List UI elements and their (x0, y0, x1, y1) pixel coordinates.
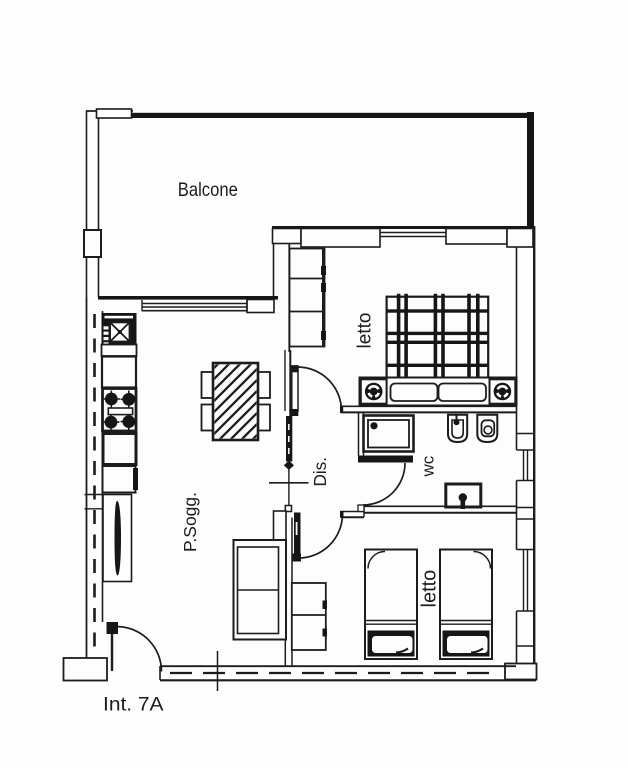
svg-text:P.Sogg.: P.Sogg. (180, 492, 200, 552)
svg-text:Dis.: Dis. (310, 457, 330, 487)
svg-text:letto: letto (419, 570, 441, 608)
svg-text:Int. 7A: Int. 7A (103, 694, 164, 716)
svg-text:wc: wc (419, 455, 438, 477)
svg-text:letto: letto (355, 313, 376, 349)
svg-text:Balcone: Balcone (178, 179, 238, 201)
